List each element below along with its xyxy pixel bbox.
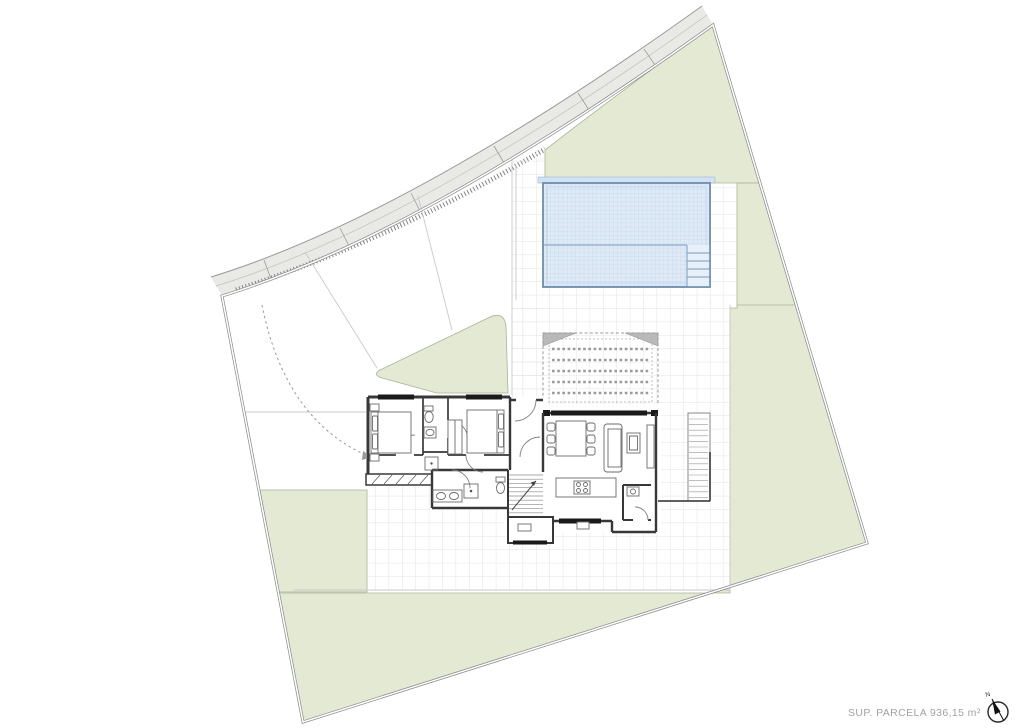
- pool-coping: [538, 177, 715, 183]
- bedroom1-furniture: [370, 404, 411, 461]
- parcel-area-label: SUP. PARCELA 936,15 m²: [848, 707, 981, 719]
- swimming-pool: [538, 177, 715, 287]
- entry-mat: [577, 522, 589, 529]
- north-label: N: [985, 691, 992, 699]
- pool-steps: [687, 245, 710, 287]
- garden-island: [376, 315, 508, 393]
- kitchen-island: [556, 478, 616, 497]
- dining-set: [547, 421, 595, 456]
- site-plan-canvas: SUP. PARCELA 936,15 m² N: [0, 0, 1024, 728]
- site-plan-page: SUP. PARCELA 936,15 m² N: [0, 0, 1024, 728]
- north-arrow-icon: N: [985, 691, 1008, 722]
